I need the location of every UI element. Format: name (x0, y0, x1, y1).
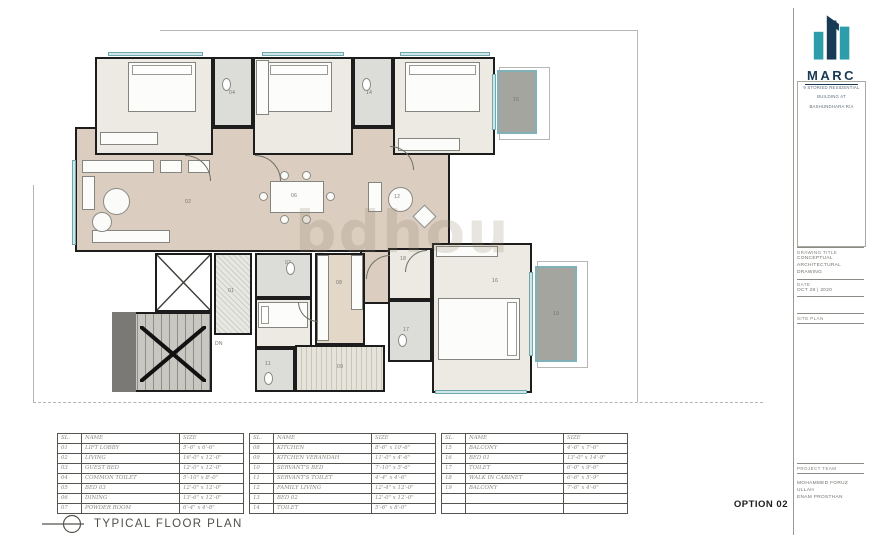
cell: KITCHEN (274, 444, 372, 454)
toilet-17-room: 17 (388, 300, 432, 362)
wardrobe-furniture (256, 60, 269, 115)
title-block: MARC 9 STORIED RESIDENTIAL BUILDING AT B… (793, 8, 869, 535)
plan-text-label: DN (215, 342, 223, 347)
header-cell: SIZE (564, 434, 628, 444)
table-row: 01LIFT LOBBY5'-6" x 6'-6" (58, 444, 244, 454)
drawing-sheet: 03040514131501071011090818171619020612DN… (0, 0, 870, 540)
cell: BALCONY (466, 444, 564, 454)
site-plan-section: SITE PLAN (797, 313, 864, 324)
site-plan-label: SITE PLAN (797, 316, 864, 321)
room-number-label: 18 (400, 257, 406, 262)
drawing-title-value: CONCEPTUAL ARCHITECTURAL DRAWING (797, 255, 864, 277)
cell: WALK IN CABINET (466, 474, 564, 484)
room-number-label: 15 (513, 98, 519, 103)
bed-furniture (438, 298, 520, 360)
cell (466, 504, 564, 514)
lift-lobby-room: 01 (214, 253, 252, 335)
room-number-label: 14 (366, 91, 372, 96)
table-header-row: SL.NAMESIZE (442, 434, 628, 444)
cell: 8'-6" x 10'-6" (372, 444, 436, 454)
table-header-row: SL.NAMESIZE (250, 434, 436, 444)
room-number-label: 04 (229, 91, 235, 96)
table-row: 11SERVANT'S TOILET4'-4" x 4'-6" (250, 474, 436, 484)
cell: 12'-4" x 12'-0" (372, 484, 436, 494)
wc-furniture (264, 372, 273, 385)
table-row: 12FAMILY LIVING12'-4" x 12'-0" (250, 484, 436, 494)
drawing-title-section: DRAWING TITLE CONCEPTUAL ARCHITECTURAL D… (797, 247, 864, 277)
chair-furniture (326, 192, 335, 201)
date-section: DATE OCT 28 | 2020 (797, 279, 864, 297)
table-header-row: SL.NAMESIZE (58, 434, 244, 444)
project-subtitle-box: 9 STORIED RESIDENTIAL BUILDING AT BASHUN… (797, 81, 866, 247)
cell: SERVANT'S TOILET (274, 474, 372, 484)
plan-title-row: TYPICAL FLOOR PLAN (42, 514, 243, 534)
cell: 5'-6" x 8'-0" (372, 504, 436, 514)
cell: 6'-4" x 4'-8" (180, 504, 244, 514)
table-row: 09KITCHEN VERANDAH11'-0" x 4'-6" (250, 454, 436, 464)
window-strip (72, 160, 76, 245)
cell: 19 (442, 484, 466, 494)
chair-furniture (302, 171, 311, 180)
table-row: 06DINING13'-6" x 12'-0" (58, 494, 244, 504)
chair-furniture (259, 192, 268, 201)
table-row: 19BALCONY7'-6" x 4'-6" (442, 484, 628, 494)
cell: 16'-0" x 12'-0" (180, 454, 244, 464)
sofa-furniture (160, 160, 182, 173)
window-strip (529, 272, 533, 356)
cell: 13 (250, 494, 274, 504)
cell: 5'-6" x 6'-6" (180, 444, 244, 454)
table-row: 02LIVING16'-0" x 12'-0" (58, 454, 244, 464)
boundary-line (33, 402, 763, 403)
bed-pillow (507, 302, 517, 356)
cell: DINING (82, 494, 180, 504)
cell: 6'-6" x 5'-9" (564, 474, 628, 484)
room-number-label: 17 (403, 328, 409, 333)
cell: 03 (58, 464, 82, 474)
table-row: 07POWDER ROOM6'-4" x 4'-8" (58, 504, 244, 514)
roundtable-furniture (388, 187, 413, 212)
cell: 17 (442, 464, 466, 474)
boundary-line (33, 185, 34, 402)
window-strip (435, 390, 527, 394)
cell: 4'-4" x 4'-6" (372, 474, 436, 484)
cell: KITCHEN VERANDAH (274, 454, 372, 464)
header-cell: SL. (442, 434, 466, 444)
table-row: 05BED 0312'-0" x 12'-0" (58, 484, 244, 494)
wc-furniture (286, 262, 295, 275)
cell: 02 (58, 454, 82, 464)
plan-title: TYPICAL FLOOR PLAN (94, 518, 243, 530)
wardrobe-furniture (100, 132, 158, 145)
table-row (442, 494, 628, 504)
sofa-furniture (82, 160, 154, 173)
table-row: 10SERVANT'S BED7'-10" x 5'-6" (250, 464, 436, 474)
cell: TOILET (466, 464, 564, 474)
roundtable-furniture (103, 188, 130, 215)
bed-furniture (128, 62, 196, 112)
cell: LIFT LOBBY (82, 444, 180, 454)
cell: 7'-6" x 4'-6" (564, 484, 628, 494)
table-row: 16BED 0113'-0" x 14'-9" (442, 454, 628, 464)
table-row: 03GUEST BED12'-0" x 12'-0" (58, 464, 244, 474)
floor-plan: 03040514131501071011090818171619020612DN… (0, 0, 790, 430)
bed-pillow (132, 65, 192, 75)
table-row: 15BALCONY4'-6" x 7'-6" (442, 444, 628, 454)
cell: 09 (250, 454, 274, 464)
room-number-label: 09 (337, 365, 343, 370)
balcony-19-room: 19 (535, 266, 577, 362)
lift-stair-cross-icon (140, 326, 206, 382)
roundtable-furniture (92, 212, 112, 232)
chair-furniture (280, 171, 289, 180)
window-strip (492, 74, 496, 130)
team-member: MOHAMMED FORUZ ULLAH (797, 480, 864, 494)
bed-furniture (405, 62, 480, 112)
header-cell: SL. (58, 434, 82, 444)
room-number-label: 11 (265, 362, 271, 367)
room-number-label: 08 (336, 281, 342, 286)
cell: 4'-6" x 7'-6" (564, 444, 628, 454)
project-team-label: PROJECT TEAM (797, 466, 864, 471)
cell: 04 (58, 474, 82, 484)
logo: MARC (794, 8, 869, 85)
project-subtitle-line: 9 STORIED RESIDENTIAL (798, 85, 865, 91)
bed-furniture (266, 62, 332, 112)
landing-furniture (112, 312, 136, 392)
option-label: OPTION 02 (734, 499, 788, 510)
wardrobe-furniture (436, 246, 498, 257)
wardrobe-furniture (398, 138, 460, 151)
bed-pillow (261, 306, 269, 324)
cell: 12'-0" x 12'-0" (372, 494, 436, 504)
cell (466, 494, 564, 504)
cell (442, 494, 466, 504)
project-team-names: MOHAMMED FORUZ ULLAH ENAM PROSTHAN (797, 480, 864, 502)
cell: 12'-0" x 12'-0" (180, 484, 244, 494)
room-table-2: SL.NAMESIZE08KITCHEN8'-6" x 10'-6"09KITC… (249, 433, 436, 514)
cell: 12'-0" x 12'-0" (180, 464, 244, 474)
cell: 13'-6" x 12'-0" (180, 494, 244, 504)
sofa-furniture (368, 182, 382, 212)
room-table-1: SL.NAMESIZE01LIFT LOBBY5'-6" x 6'-6"02LI… (57, 433, 244, 514)
cell: LIVING (82, 454, 180, 464)
table-row (442, 504, 628, 514)
datum-marker-icon (42, 514, 86, 534)
header-cell: NAME (466, 434, 564, 444)
lift-stair-cross-icon (157, 255, 210, 310)
cell: 08 (250, 444, 274, 454)
bed-pillow (409, 65, 476, 75)
counter-furniture (317, 255, 329, 341)
room-number-label: 19 (553, 312, 559, 317)
cell: BED 01 (466, 454, 564, 464)
common-toilet-room: 04 (213, 57, 253, 127)
cell: 18 (442, 474, 466, 484)
cell: COMMON TOILET (82, 474, 180, 484)
boundary-line (637, 30, 638, 402)
table-row: 13BED 0212'-0" x 12'-0" (250, 494, 436, 504)
room-number-label: 01 (228, 289, 234, 294)
window-strip (400, 52, 490, 56)
plan-text-label: 06 (291, 194, 297, 199)
room-schedule-tables: SL.NAMESIZE01LIFT LOBBY5'-6" x 6'-6"02LI… (57, 433, 628, 514)
wc-furniture (398, 334, 407, 347)
wc-furniture (222, 78, 231, 91)
sofa-furniture (82, 176, 95, 210)
cell: POWDER ROOM (82, 504, 180, 514)
boundary-line (160, 30, 638, 31)
cell: GUEST BED (82, 464, 180, 474)
header-cell: SIZE (372, 434, 436, 444)
cell: 10 (250, 464, 274, 474)
cell (564, 494, 628, 504)
cell: SERVANT'S BED (274, 464, 372, 474)
cell: BED 03 (82, 484, 180, 494)
balcony-15-room: 15 (497, 70, 537, 134)
kitchen-verandah-room: 09 (295, 345, 385, 392)
cell: 11'-0" x 4'-6" (372, 454, 436, 464)
cell (564, 504, 628, 514)
cell: 01 (58, 444, 82, 454)
plan-text-label: 02 (185, 200, 191, 205)
drawing-title-line2: ARCHITECTURAL DRAWING (797, 263, 841, 275)
project-team-section: PROJECT TEAM (797, 463, 864, 474)
header-cell: SL. (250, 434, 274, 444)
servants-toilet-room: 11 (255, 348, 295, 392)
header-cell: NAME (82, 434, 180, 444)
header-cell: NAME (274, 434, 372, 444)
cell: FAMILY LIVING (274, 484, 372, 494)
cell: 15 (442, 444, 466, 454)
chair-furniture (302, 215, 311, 224)
cell: 07 (58, 504, 82, 514)
drawing-title-line1: CONCEPTUAL (797, 256, 833, 261)
sofa-furniture (92, 230, 170, 243)
marc-building-icon (806, 12, 858, 62)
window-strip (262, 52, 344, 56)
cell: 16 (442, 454, 466, 464)
plan-text-label: 12 (394, 195, 400, 200)
date-value: OCT 28 | 2020 (797, 287, 864, 294)
cell: 5'-10" x 8'-0" (180, 474, 244, 484)
cell: 6'-0" x 9'-6" (564, 464, 628, 474)
cell (442, 504, 466, 514)
cell: 12 (250, 484, 274, 494)
divider (797, 296, 864, 297)
team-member: ENAM PROSTHAN (797, 494, 864, 501)
table-row: 04COMMON TOILET5'-10" x 8'-0" (58, 474, 244, 484)
room-table-3: SL.NAMESIZE15BALCONY4'-6" x 7'-6"16BED 0… (441, 433, 628, 514)
bed-pillow (270, 65, 328, 75)
chair-furniture (280, 215, 289, 224)
room-number-label: 16 (492, 279, 498, 284)
cell: TOILET (274, 504, 372, 514)
cell: BED 02 (274, 494, 372, 504)
cell: 11 (250, 474, 274, 484)
window-strip (108, 52, 203, 56)
cell: 13'-0" x 14'-9" (564, 454, 628, 464)
cell: BALCONY (466, 484, 564, 494)
counter-furniture (351, 255, 363, 310)
project-subtitle-line: BASHUNDHARA R/A (798, 104, 865, 110)
table-row: 14TOILET5'-6" x 8'-0" (250, 504, 436, 514)
table-row: 08KITCHEN8'-6" x 10'-6" (250, 444, 436, 454)
cell: 14 (250, 504, 274, 514)
cell: 06 (58, 494, 82, 504)
cell: 05 (58, 484, 82, 494)
table-row: 17TOILET6'-0" x 9'-6" (442, 464, 628, 474)
project-subtitle-line: BUILDING AT (798, 94, 865, 100)
header-cell: SIZE (180, 434, 244, 444)
toilet-14-room: 14 (353, 57, 393, 127)
powder-room: 07 (255, 253, 312, 298)
wc-furniture (362, 78, 371, 91)
cell: 7'-10" x 5'-6" (372, 464, 436, 474)
table-row: 18WALK IN CABINET6'-6" x 5'-9" (442, 474, 628, 484)
